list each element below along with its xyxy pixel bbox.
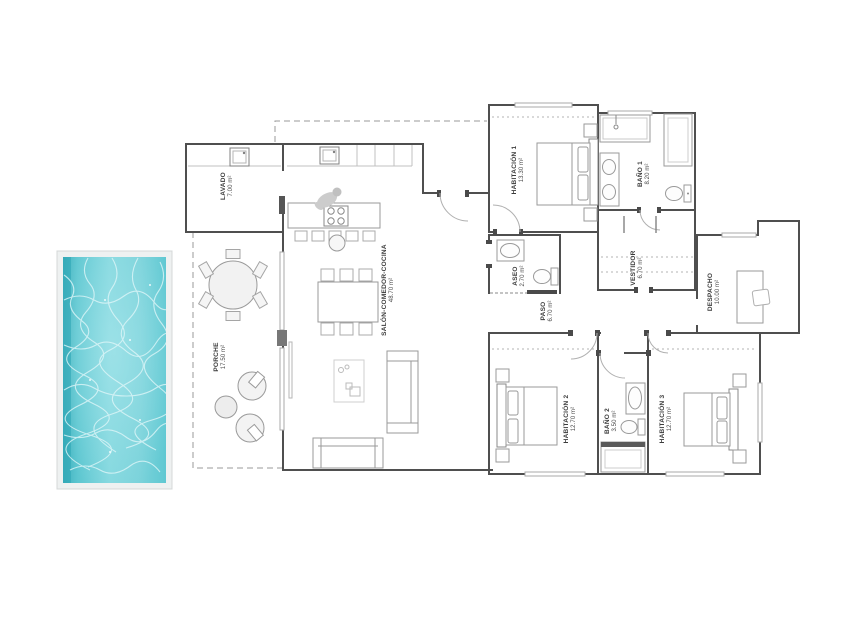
room-label-habitacion-2: HABITACIÓN 2 12.70 m² [563, 395, 579, 444]
room-name: VESTIDOR [630, 250, 637, 285]
room-label-salon: SALÓN-COMEDOR-COCINA 48.70 m² [381, 244, 397, 336]
room-area: 48.70 m² [389, 244, 397, 336]
entry-roof-dashed [275, 121, 487, 142]
room-label-porche: PORCHE 17.50 m² [213, 342, 229, 371]
floor-plan-drawing [0, 0, 851, 625]
room-name: HABITACIÓN 2 [563, 395, 570, 444]
swimming-pool [57, 251, 182, 489]
room-name: PASO [540, 302, 547, 321]
room-name: PORCHE [213, 342, 220, 371]
room-name: BAÑO 2 [604, 408, 611, 434]
room-label-despacho: DESPACHO 10.00 m² [707, 273, 723, 311]
room-label-habitacion-3: HABITACIÓN 3 12.70 m² [659, 395, 675, 444]
room-name: LAVADO [220, 172, 227, 200]
room-label-bano-1: BAÑO 1 8.20 m² [637, 161, 653, 187]
room-area: 7.00 m² [228, 172, 236, 200]
room-area: 8.20 m² [645, 161, 653, 187]
room-area: 3.50 m² [612, 408, 620, 434]
room-label-habitacion-1: HABITACIÓN 1 13.30 m² [511, 146, 527, 195]
room-name: ASEO [512, 266, 519, 285]
room-name: HABITACIÓN 1 [511, 146, 518, 195]
furniture [188, 114, 770, 472]
room-area: 17.50 m² [221, 342, 229, 371]
closet-stubs [624, 216, 656, 233]
room-label-lavado: LAVADO 7.00 m² [220, 172, 236, 200]
room-area: 6.70 m² [548, 300, 556, 321]
room-label-bano-2: BAÑO 2 3.50 m² [604, 408, 620, 434]
room-area: 12.70 m² [571, 395, 579, 444]
room-label-aseo: ASEO 2.70 m² [512, 265, 528, 286]
room-area: 12.70 m² [667, 395, 675, 444]
room-area: 2.70 m² [520, 265, 528, 286]
floor-plan-canvas: LAVADO 7.00 m² PORCHE 17.50 m² SALÓN-COM… [0, 0, 851, 625]
room-area: 13.30 m² [519, 146, 527, 195]
room-label-paso: PASO 6.70 m² [540, 300, 556, 321]
room-name: BAÑO 1 [637, 161, 644, 187]
room-name: DESPACHO [707, 273, 714, 311]
room-area: 6.70 m² [638, 250, 646, 285]
room-label-vestidor: VESTIDOR 6.70 m² [630, 250, 646, 285]
room-name: SALÓN-COMEDOR-COCINA [381, 244, 388, 336]
room-area: 10.00 m² [715, 273, 723, 311]
room-name: HABITACIÓN 3 [659, 395, 666, 444]
